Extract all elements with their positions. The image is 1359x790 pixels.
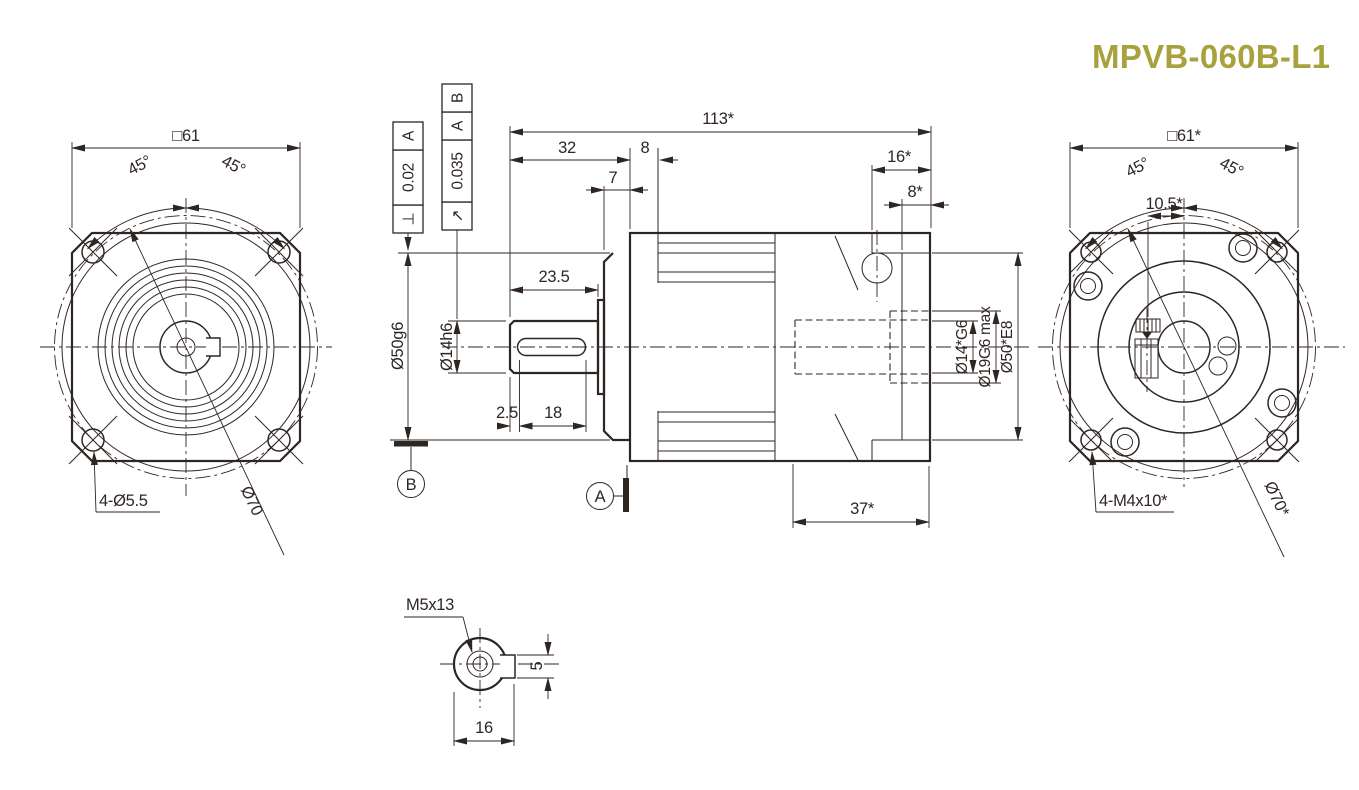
detail-dim-key-width-text: 5 (528, 661, 546, 670)
fcf-runout-symbol: ↗ (450, 210, 467, 223)
side-dim-shaft-dia-text: Ø14h6 (438, 323, 456, 371)
side-dim-key-offset-text: 2.5 (496, 404, 518, 422)
rear-view: □61* 45° 45° 10.5* 4-M4x10* Ø70* (1038, 127, 1345, 557)
drawing-title: MPVB-060B-L1 (1092, 38, 1330, 75)
side-view: 113* 32 8 7 16* 8* (389, 84, 1030, 528)
fcf-runout-datum-1: A (450, 120, 467, 131)
side-dim-rear-lip: 8* (884, 183, 949, 250)
rear-bolt-circle-label: Ø70* (1261, 479, 1293, 520)
side-dim-rear-len-text: 16* (887, 148, 912, 166)
side-dim-rear-section-text: 37* (850, 500, 875, 518)
side-dim-overall-text: 113* (702, 110, 734, 128)
fcf-perp-value: 0.02 (401, 163, 418, 192)
engineering-drawing-canvas: MPVB-060B-L1 □61 (0, 0, 1359, 785)
side-dim-shaft-usable: 23.5 (510, 268, 598, 297)
side-dim-shaft-and-lip: 32 8 (510, 139, 678, 229)
fcf-perpendicularity: ⊥ 0.02 A (393, 122, 423, 250)
fcf-runout-datum-2: B (450, 93, 467, 103)
side-pilot-boss (604, 253, 630, 440)
side-body-outline (630, 148, 930, 461)
datum-a-label: A (595, 488, 606, 506)
side-dim-pilot-len: 7 (586, 169, 648, 250)
detail-tap-label: M5x13 (406, 596, 454, 614)
side-dim-pilot-len-text: 7 (609, 169, 618, 187)
side-dim-bore-max-text: Ø19G6 max (977, 306, 994, 387)
rear-holes-label: 4-M4x10* (1099, 492, 1168, 510)
drawing-page: MPVB-060B-L1 □61 (0, 0, 1359, 785)
rear-angle-right-text: 45° (1216, 154, 1246, 181)
side-dim-recess-dia-text: Ø50*E8 (999, 321, 1016, 374)
front-angle-right-text: 45° (218, 152, 248, 179)
front-bolt-circle-label: Ø70 (237, 483, 266, 518)
detail-dim-across-flat-text: 16 (475, 719, 493, 737)
fcf-perp-datum: A (401, 130, 418, 141)
side-dim-pilot-dia-text: Ø50g6 (389, 322, 407, 370)
detail-dim-key-width: 5 (517, 634, 554, 699)
rear-dim-screw-offset-text: 10.5* (1145, 195, 1183, 213)
detail-key (500, 655, 515, 678)
side-dim-shaft-len-text: 32 (558, 139, 576, 157)
datum-b-label: B (406, 476, 417, 494)
front-bolt-circle-callout: Ø70 (130, 229, 284, 555)
front-holes-label: 4-Ø5.5 (99, 492, 148, 510)
front-view: □61 45° 45° 4-Ø5.5 Ø70 (40, 127, 332, 555)
rear-counterbore-holes (1074, 234, 1296, 456)
detail-dim-across-flat: 16 (454, 684, 514, 746)
detail-tap-callout: M5x13 (404, 596, 472, 652)
side-dim-rear-section: 37* (793, 464, 929, 528)
front-dim-square-text: □61 (172, 127, 200, 145)
datum-a-symbol: A (587, 465, 630, 512)
side-dim-rear-lip-text: 8* (908, 183, 924, 201)
side-dim-key-len-text: 18 (544, 404, 562, 422)
front-angle-left-text: 45° (125, 152, 155, 179)
front-shaft-keyway (206, 338, 220, 356)
side-dim-front-lip-text: 8 (641, 139, 650, 157)
side-dim-keyway: 2.5 18 (496, 360, 586, 432)
side-access-hole (862, 230, 892, 302)
side-dim-bore-dia-text: Ø14*G6 (954, 320, 971, 374)
rear-angle-left-text: 45° (1123, 154, 1153, 181)
datum-b-symbol: B (394, 441, 428, 498)
rear-dim-screw-offset: 10.5* (1145, 195, 1184, 317)
side-dim-shaft-usable-text: 23.5 (539, 268, 570, 286)
fcf-perp-symbol: ⊥ (401, 212, 418, 225)
rear-dim-square-text: □61* (1167, 127, 1201, 145)
fcf-runout: ↗ 0.035 A B (442, 84, 472, 319)
side-shaft (510, 253, 630, 440)
shaft-end-detail: 5 16 M5x13 (404, 596, 560, 746)
fcf-runout-value: 0.035 (450, 152, 467, 189)
